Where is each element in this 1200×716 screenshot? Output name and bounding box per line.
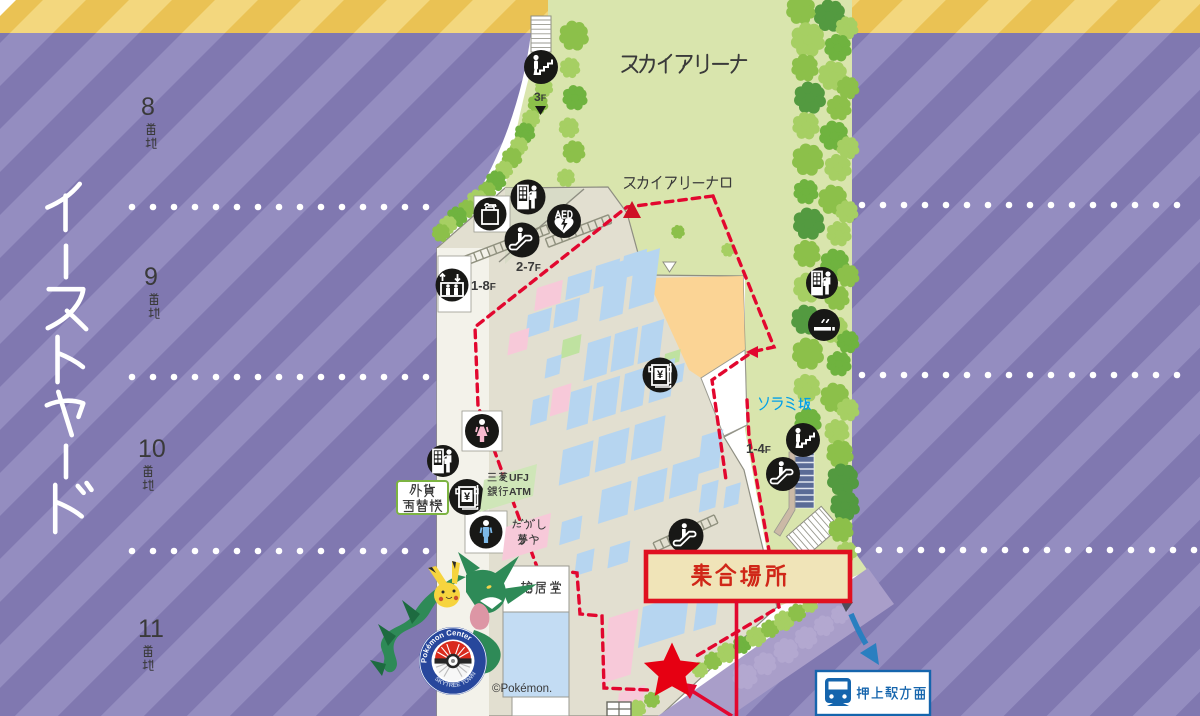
svg-text:ATM: ATM [509, 486, 531, 498]
svg-text:3F: 3F [534, 90, 547, 104]
svg-text:UFJ: UFJ [509, 472, 529, 484]
svg-text:9: 9 [144, 263, 158, 291]
svg-text:©Pokémon.: ©Pokémon. [492, 683, 552, 695]
svg-text:¥: ¥ [657, 369, 664, 381]
svg-text:10: 10 [138, 435, 166, 463]
svg-text:11: 11 [138, 615, 164, 643]
svg-text:¥: ¥ [464, 491, 471, 503]
svg-text:8: 8 [141, 93, 155, 121]
